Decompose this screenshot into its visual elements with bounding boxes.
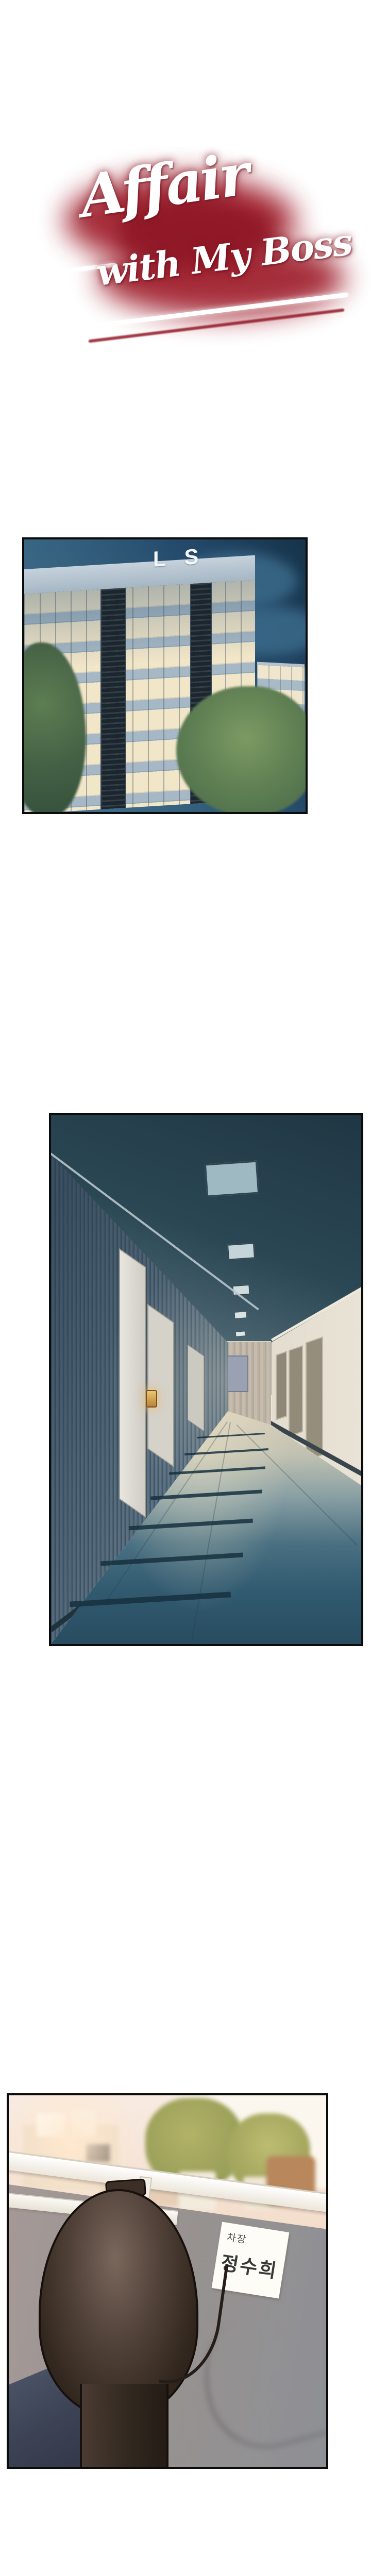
tree: [176, 686, 308, 814]
building-sign: L S: [133, 543, 225, 573]
ceiling-light: [235, 1331, 246, 1336]
building-dark-shaft: [100, 588, 126, 809]
series-logo: Affair with My Boss: [52, 152, 340, 330]
office-chair-lower: [80, 2384, 168, 2469]
ceiling-light: [205, 1161, 259, 1197]
door: [289, 1345, 303, 1437]
ceiling-light: [227, 1243, 255, 1260]
panel-office-cubicle: 차장 정수희: [7, 2093, 328, 2469]
door: [276, 1351, 287, 1420]
webtoon-page: Affair with My Boss L S: [0, 0, 371, 2576]
door: [188, 1345, 204, 1431]
ceiling-light: [234, 1311, 247, 1319]
door-frame: [119, 1248, 146, 1518]
door: [147, 1304, 174, 1468]
panel-hallway: [49, 1113, 363, 1646]
floor-lantern: [146, 1390, 157, 1408]
panel-building-exterior: L S: [22, 537, 308, 814]
